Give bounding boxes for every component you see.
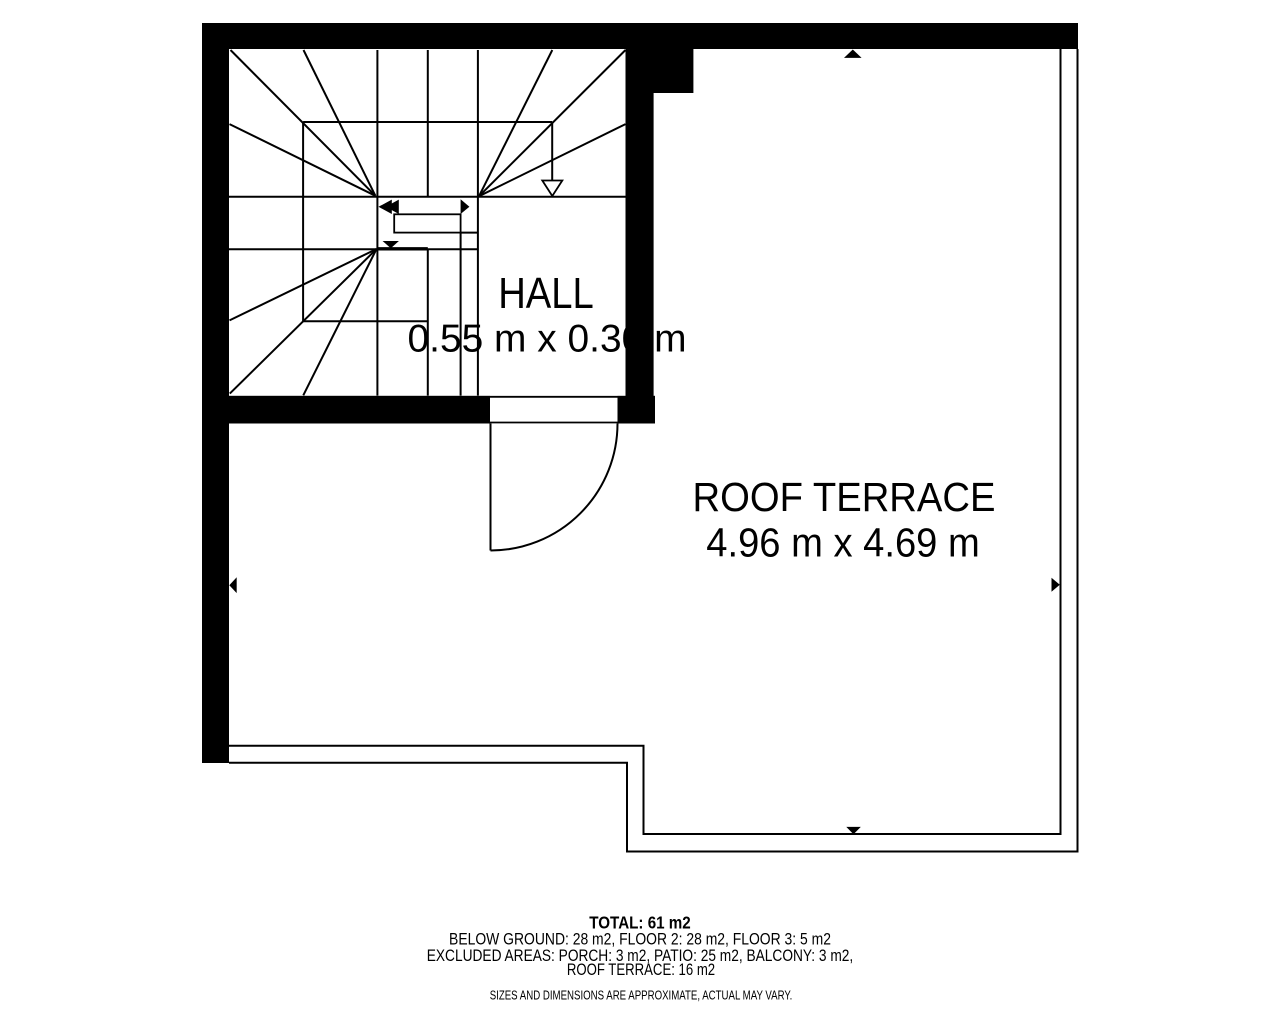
svg-text:HALL: HALL — [498, 269, 594, 318]
svg-text:4.96 m x 4.69 m: 4.96 m x 4.69 m — [706, 519, 980, 565]
svg-text:ROOF TERRACE: ROOF TERRACE — [693, 474, 996, 520]
svg-text:ROOF TERRACE: 16 m2: ROOF TERRACE: 16 m2 — [567, 960, 715, 979]
svg-text:SIZES AND DIMENSIONS ARE APPRO: SIZES AND DIMENSIONS ARE APPROXIMATE, AC… — [490, 988, 793, 1003]
